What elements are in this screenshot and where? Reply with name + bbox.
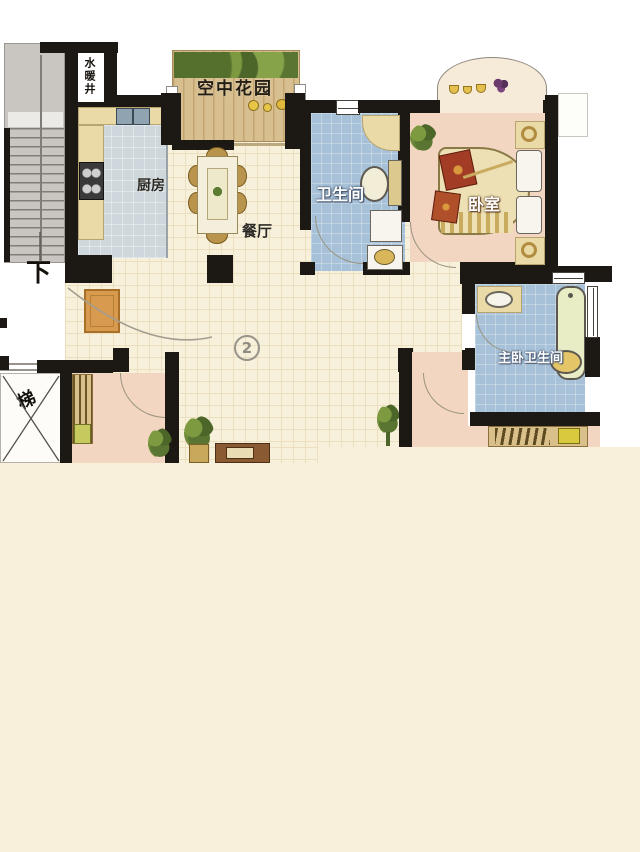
dining-centerpiece [212, 186, 223, 200]
bed-blanket-red-2 [431, 190, 461, 223]
master-bath-left-wall-upper [462, 284, 475, 314]
stair-divider-line [40, 55, 42, 261]
master-bath-top-wall [460, 270, 552, 284]
master-bath-right-window [587, 286, 598, 338]
master-bath-left-wall-lower [462, 350, 475, 370]
stairs-down-label: 下 [26, 260, 51, 285]
kitchen-top-wall [115, 95, 163, 107]
master-bath-sink-basin [485, 291, 513, 308]
sky-garden-label: 空中花园 [197, 81, 273, 98]
dining-label: 餐厅 [242, 224, 272, 239]
hall-plant-right [377, 404, 400, 434]
elevator-shaft [0, 373, 62, 463]
stove [79, 162, 104, 200]
bedroom2-left-wall [60, 373, 72, 463]
doormat-inner-line [90, 295, 114, 327]
kitchen-sink-divider [132, 109, 134, 124]
kitchen-label: 厨房 [137, 179, 165, 193]
stair-steps [5, 128, 64, 260]
toilet-bowl [360, 166, 389, 202]
unit-number-circle: 2 [234, 335, 260, 361]
unit-number: 2 [242, 341, 252, 356]
bathroom-left-wall [300, 108, 311, 230]
bedroom-top-wall-left [410, 100, 440, 113]
tv-cabinet-screen [226, 447, 254, 459]
bathtub-drain [568, 293, 573, 298]
garden-bottom-wall [172, 140, 234, 150]
left-edge-stub-1 [0, 318, 7, 328]
stair-left-edge-wall [4, 128, 10, 262]
hall-plant-pot [189, 444, 209, 463]
master-bedroom-left-wall [399, 352, 412, 447]
bathroom-top-wall-left [300, 100, 336, 113]
hall-plant-small [148, 428, 172, 458]
water-shaft-label: 水暖井 [84, 57, 95, 96]
dresser-clothes [495, 428, 550, 445]
wardrobe-box [74, 424, 91, 444]
ac-platform-outline [558, 93, 588, 137]
hall-post-left [113, 348, 129, 372]
bay-window-grapes [493, 78, 510, 93]
master-bath-right-wall [585, 337, 600, 377]
bedroom-label: 卧室 [468, 197, 500, 213]
entry-wall-left-chunk [65, 255, 112, 283]
hall-plant-right-stem [386, 432, 390, 446]
dresser-box [558, 428, 580, 444]
floor-plan: 下 水暖井 厨房 空中花园 餐厅 卫生间 [0, 0, 640, 852]
master-bath-bottom-wall [470, 412, 600, 426]
kitchen-dining-edge [166, 143, 168, 258]
bed-pillow-1 [516, 150, 542, 192]
background-cream-band [0, 447, 640, 852]
bedroom-right-wall [545, 95, 558, 270]
garden-fruit-2 [263, 103, 272, 112]
bedroom-plant [410, 124, 437, 151]
kitchen-left-wall [65, 42, 78, 265]
garden-sill-line [234, 143, 285, 146]
entry-wall-right-chunk [207, 255, 233, 283]
master-bathroom-label: 主卧卫生间 [498, 352, 563, 365]
bathroom-bottom-wall-left [300, 262, 315, 275]
toilet-tank [388, 160, 402, 206]
left-edge-stub-2 [0, 356, 9, 370]
garden-left-post [161, 93, 181, 145]
stair-landing-gap [8, 112, 63, 127]
bathroom-top-window [336, 100, 360, 115]
sky-garden-plants [174, 52, 298, 78]
bed-pillow-2 [516, 196, 542, 234]
master-bath-top-window [552, 272, 585, 284]
nightstand-lamp-top [521, 126, 537, 142]
washing-machine [370, 210, 402, 242]
bathroom-sink-basin [374, 249, 395, 265]
garden-fruit-1 [248, 100, 259, 111]
lower-left-top-wall [37, 360, 113, 373]
nightstand-lamp-bottom [521, 242, 537, 258]
bathroom-label: 卫生间 [316, 187, 364, 203]
